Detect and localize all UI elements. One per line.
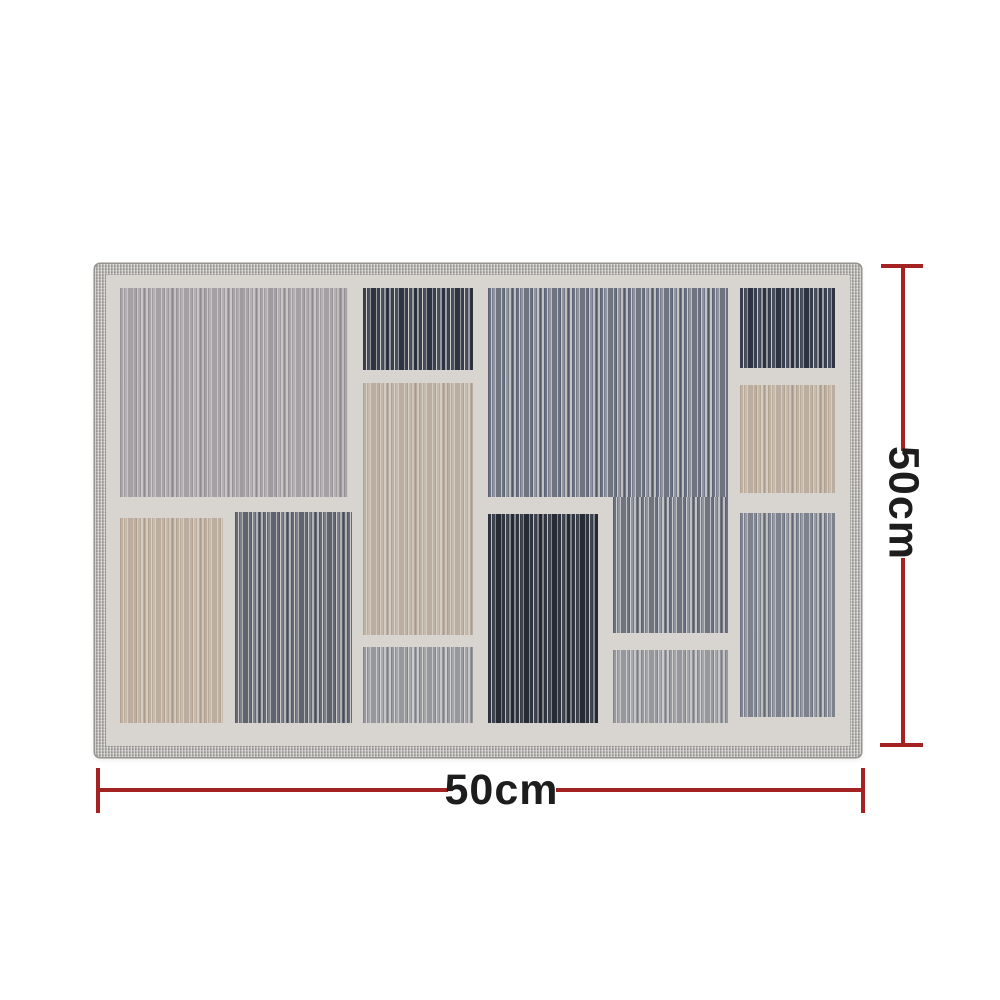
rug-panel-bottom-left-beige (120, 518, 223, 723)
width-dimension-label: 50cm (444, 766, 559, 814)
rug-panel-top-right-dark (740, 288, 835, 368)
height-dimension-label: 50cm (879, 446, 928, 560)
height-dimension-bottom-cap (880, 743, 923, 747)
rug-panel-right-beige (740, 385, 835, 493)
rug-field (106, 275, 850, 746)
rug-panel-center-slate-extension (613, 497, 728, 633)
rug-image (95, 264, 861, 757)
product-dimension-diagram: 50cm 50cm (0, 0, 1000, 1000)
rug-panel-top-left-light (120, 288, 348, 497)
rug-panel-center-slate-main (488, 288, 728, 497)
rug-panel-center-charcoal (488, 514, 598, 723)
rug-panel-upper-mid-dark (363, 288, 473, 370)
width-dimension-line-left (98, 788, 448, 792)
rug-panel-mid-beige (363, 383, 473, 635)
rug-panel-lower-center-grey (613, 650, 728, 723)
height-dimension-line-lower (901, 558, 905, 746)
rug-panel-lower-right-grey (740, 513, 835, 717)
width-dimension-right-cap (861, 768, 865, 813)
height-dimension-line-upper (901, 264, 905, 451)
rug-panel-bottom-left-slate (235, 512, 352, 723)
rug-panel-lower-mid-grey (363, 647, 473, 723)
width-dimension-line-right (556, 788, 863, 792)
